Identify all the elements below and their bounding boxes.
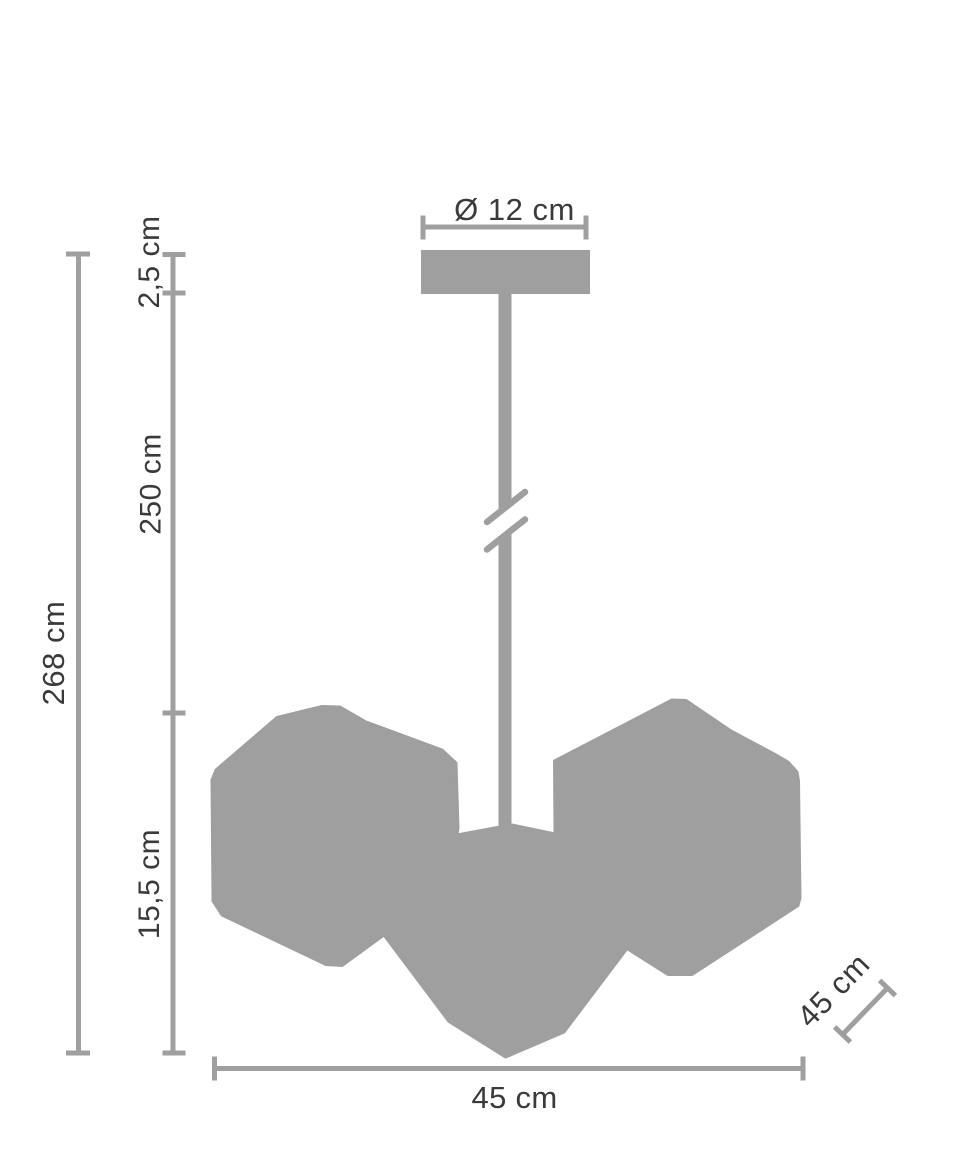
svg-text:250 cm: 250 cm <box>135 433 168 534</box>
svg-text:45 cm: 45 cm <box>472 1080 558 1115</box>
svg-text:268 cm: 268 cm <box>36 601 71 706</box>
svg-text:2,5 cm: 2,5 cm <box>133 215 166 308</box>
svg-text:Ø 12 cm: Ø 12 cm <box>454 192 575 227</box>
svg-text:15,5 cm: 15,5 cm <box>133 829 166 939</box>
